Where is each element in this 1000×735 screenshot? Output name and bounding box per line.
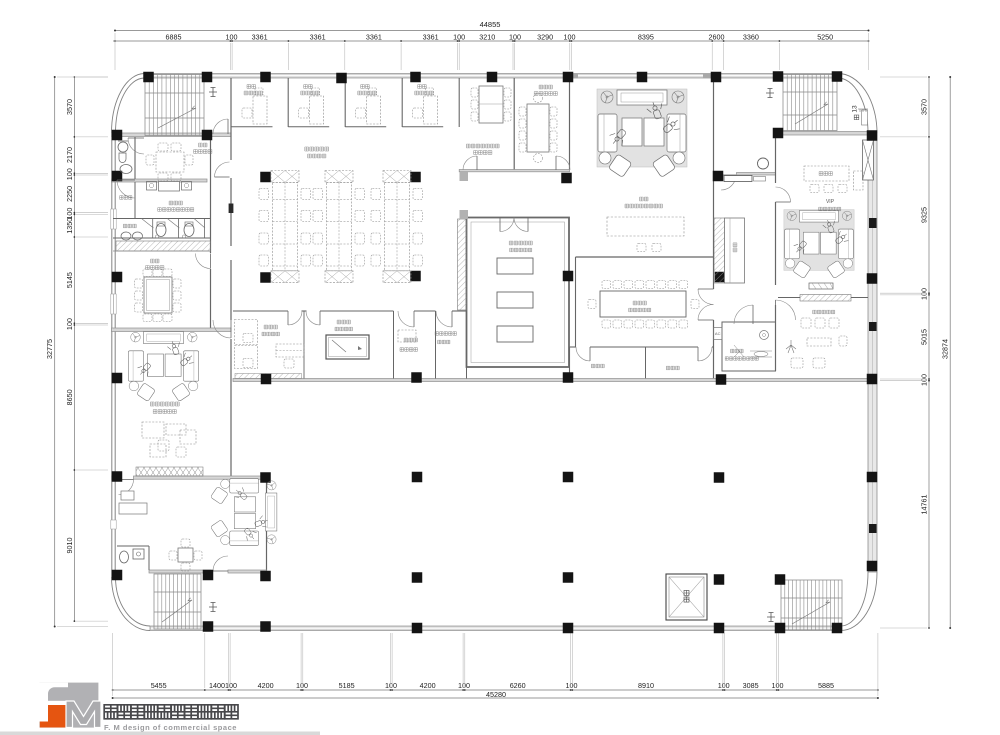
svg-text:14761: 14761 bbox=[919, 495, 928, 515]
svg-text:100: 100 bbox=[296, 681, 308, 690]
svg-text:F. M design of commercial spac: F. M design of commercial space bbox=[104, 723, 237, 732]
svg-text:32775: 32775 bbox=[45, 339, 54, 359]
svg-text:9010: 9010 bbox=[65, 538, 74, 554]
svg-text:100: 100 bbox=[919, 288, 928, 300]
svg-text:100: 100 bbox=[509, 32, 521, 41]
svg-text:5015: 5015 bbox=[919, 329, 928, 345]
svg-text:3360: 3360 bbox=[743, 32, 759, 41]
svg-text:100: 100 bbox=[225, 681, 237, 690]
svg-text:100: 100 bbox=[65, 168, 74, 180]
svg-text:100: 100 bbox=[564, 32, 576, 41]
svg-text:100: 100 bbox=[453, 32, 465, 41]
svg-text:5455: 5455 bbox=[151, 681, 167, 690]
svg-text:100: 100 bbox=[566, 681, 578, 690]
svg-text:4200: 4200 bbox=[258, 681, 274, 690]
svg-text:3570: 3570 bbox=[65, 99, 74, 115]
svg-text:100: 100 bbox=[226, 32, 238, 41]
svg-text:2170: 2170 bbox=[65, 147, 74, 163]
svg-text:5250: 5250 bbox=[817, 32, 833, 41]
svg-text:VIP: VIP bbox=[826, 199, 835, 205]
svg-text:2600: 2600 bbox=[709, 32, 725, 41]
svg-text:3210: 3210 bbox=[479, 32, 495, 41]
svg-text:13: 13 bbox=[852, 105, 859, 113]
svg-text:3361: 3361 bbox=[310, 32, 326, 41]
svg-text:1400: 1400 bbox=[209, 681, 225, 690]
svg-text:8650: 8650 bbox=[65, 389, 74, 405]
svg-text:6260: 6260 bbox=[510, 681, 526, 690]
svg-text:2250: 2250 bbox=[65, 186, 74, 202]
svg-text:8910: 8910 bbox=[638, 681, 654, 690]
svg-text:100: 100 bbox=[65, 318, 74, 330]
svg-text:3361: 3361 bbox=[366, 32, 382, 41]
svg-text:3570: 3570 bbox=[919, 99, 928, 115]
svg-text:9325: 9325 bbox=[919, 207, 928, 223]
svg-text:44855: 44855 bbox=[480, 20, 501, 29]
svg-text:3290: 3290 bbox=[537, 32, 553, 41]
svg-text:1350: 1350 bbox=[65, 218, 74, 234]
svg-text:5185: 5185 bbox=[339, 681, 355, 690]
svg-text:100: 100 bbox=[458, 681, 470, 690]
svg-text:100: 100 bbox=[919, 374, 928, 386]
svg-text:5145: 5145 bbox=[65, 272, 74, 288]
svg-text:3361: 3361 bbox=[423, 32, 439, 41]
svg-text:AC: AC bbox=[715, 331, 721, 336]
svg-text:8395: 8395 bbox=[638, 32, 654, 41]
svg-text:32874: 32874 bbox=[941, 339, 950, 359]
svg-text:100: 100 bbox=[718, 681, 730, 690]
svg-text:4200: 4200 bbox=[420, 681, 436, 690]
svg-text:45280: 45280 bbox=[486, 690, 506, 699]
svg-text:6885: 6885 bbox=[166, 32, 182, 41]
svg-text:5885: 5885 bbox=[818, 681, 834, 690]
svg-text:3361: 3361 bbox=[252, 32, 268, 41]
svg-text:100: 100 bbox=[772, 681, 784, 690]
svg-text:100: 100 bbox=[385, 681, 397, 690]
svg-text:3085: 3085 bbox=[743, 681, 759, 690]
